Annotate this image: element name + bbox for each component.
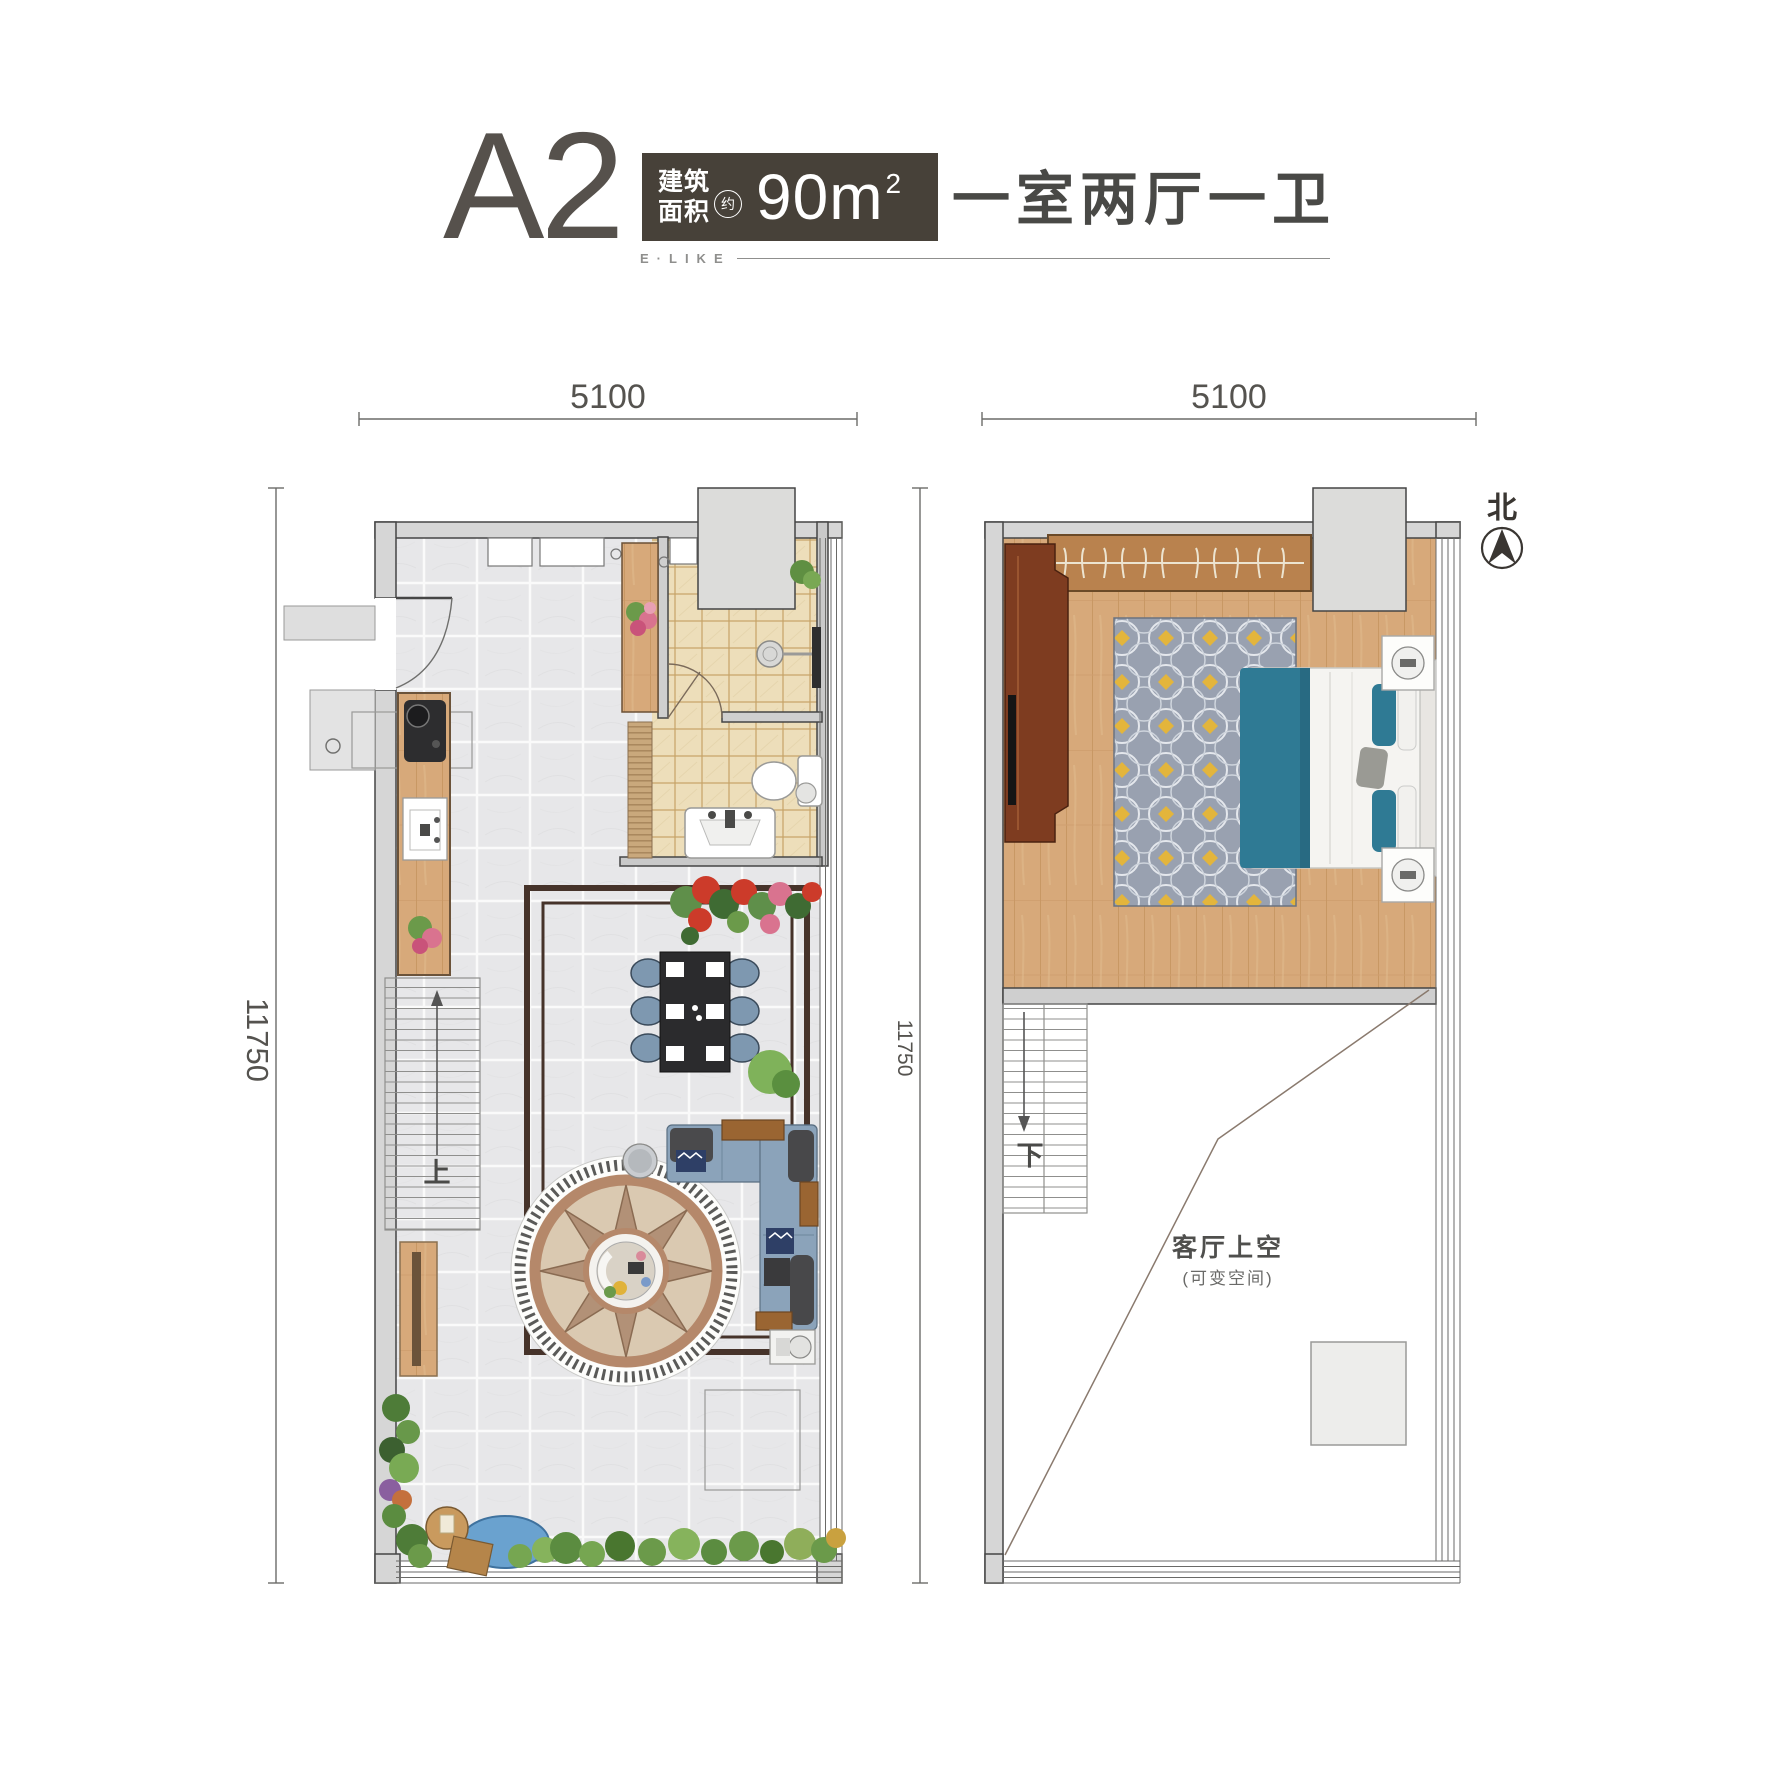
floorplan-page: A2 建筑 面积 约 90m2 一室两厅一卫 E·LIKE bbox=[0, 0, 1772, 1772]
floor-appliance bbox=[770, 1330, 815, 1364]
bed-pillow bbox=[1372, 684, 1396, 746]
stair-up-label: 上 bbox=[424, 1158, 451, 1188]
bathroom-sink-icon bbox=[685, 808, 775, 858]
compass-arrow-icon bbox=[1488, 529, 1516, 564]
floor2-plan: 下 客厅上空 (可变空间) bbox=[985, 488, 1460, 1583]
sofa-side-table bbox=[722, 1120, 784, 1140]
bedroom-cabinet bbox=[1005, 544, 1068, 842]
tv-icon bbox=[1008, 695, 1016, 805]
void-subtitle: (可变空间) bbox=[1182, 1269, 1273, 1288]
floorplans-svg: 5100 5100 11750 11750 北 bbox=[0, 0, 1772, 1772]
dining-set bbox=[631, 952, 759, 1072]
dim-floor1-height: 11750 bbox=[240, 998, 275, 1082]
bathroom-screen bbox=[628, 722, 652, 858]
zigzag-pillow bbox=[676, 1150, 706, 1172]
floor2-bottom-window bbox=[985, 1561, 1460, 1583]
north-label: 北 bbox=[1487, 492, 1517, 525]
wardrobe bbox=[1048, 535, 1311, 591]
staircase-up bbox=[385, 978, 480, 1230]
stair-down-label: 下 bbox=[1017, 1141, 1044, 1171]
bed-blanket bbox=[1240, 668, 1310, 868]
floor2-right-window bbox=[1436, 522, 1460, 1583]
bed bbox=[1240, 660, 1436, 876]
floor-medallion bbox=[511, 1156, 741, 1386]
staircase-down bbox=[1003, 1004, 1087, 1213]
floor1-bottom-window bbox=[375, 1561, 842, 1583]
dim-floor1-width: 5100 bbox=[570, 378, 646, 416]
kitchen-counter bbox=[398, 693, 450, 975]
floor1-plan: 上 bbox=[284, 488, 846, 1583]
shaft-box-floor1 bbox=[698, 488, 795, 609]
north-compass: 北 bbox=[1482, 492, 1522, 568]
dim-floor2-width: 5100 bbox=[1191, 378, 1267, 416]
void-platform bbox=[1311, 1342, 1406, 1445]
void-title: 客厅上空 bbox=[1172, 1233, 1284, 1262]
bench bbox=[400, 1242, 437, 1376]
dim-floor2-height: 11750 bbox=[893, 1020, 916, 1077]
shaft-box-floor2 bbox=[1313, 488, 1406, 611]
